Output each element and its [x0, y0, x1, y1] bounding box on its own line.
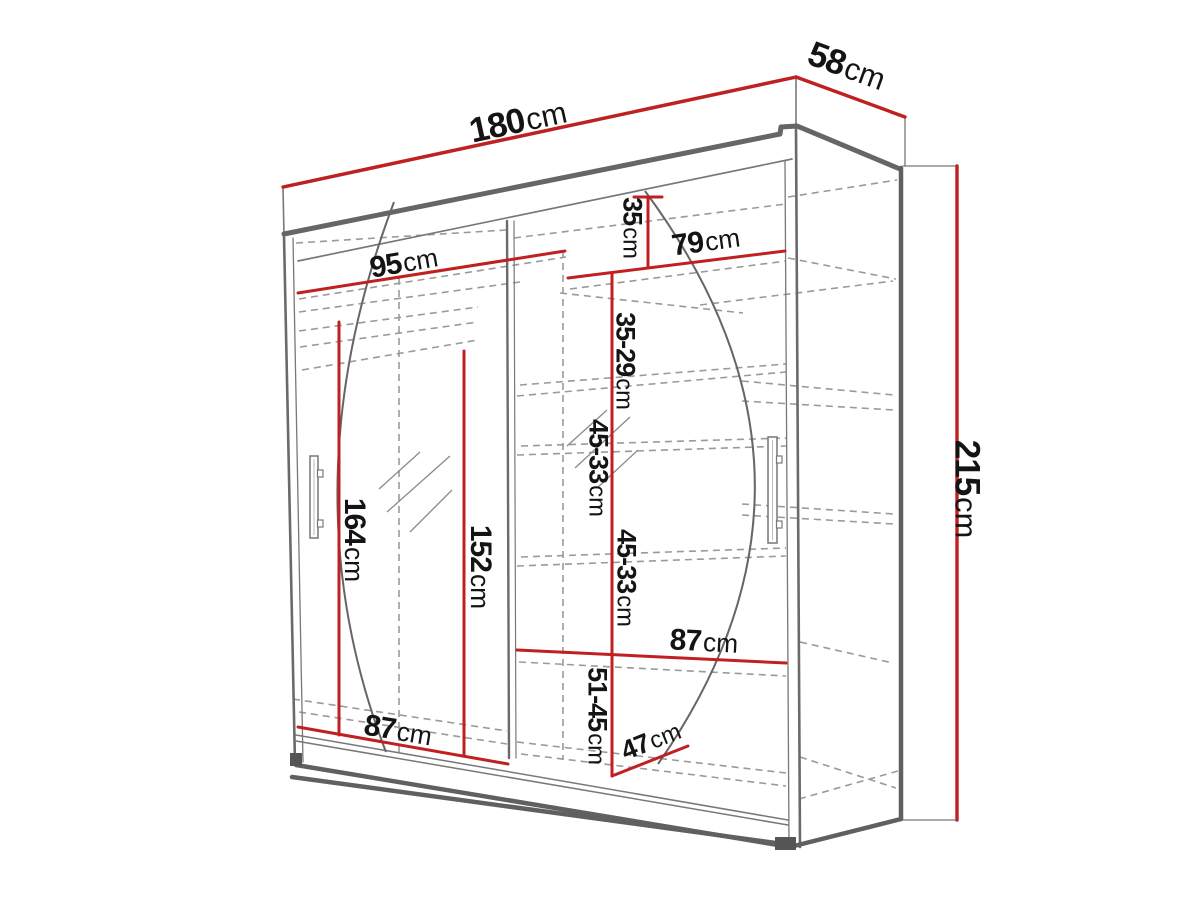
handle-mount [318, 520, 324, 527]
shelf-edge-dashed [800, 642, 893, 663]
dim-line-right-shelf-width [517, 650, 786, 663]
side-bottom-edge [790, 819, 901, 847]
dim-label-top-shelf-space: 35cm [619, 197, 646, 259]
glint-line [410, 490, 452, 532]
shelf-edge-dashed [788, 180, 897, 197]
shelf-edge-dashed [302, 340, 478, 370]
wardrobe-dimension-diagram: 180cm 58cm 215cm 95cm 79cm 35cm 35-29cm … [0, 0, 1200, 900]
shelf-edge-dashed [299, 307, 478, 331]
shelf-edge-dashed [519, 662, 786, 676]
dim-label-right-shelf-width: 87cm [669, 625, 739, 659]
dim-label-left-hanging-height: 164cm [339, 498, 369, 582]
shelf-edge-dashed [800, 757, 896, 788]
dim-label-total-height: 215cm [950, 440, 985, 538]
shelf-edge-dashed [521, 548, 786, 557]
door-divider [507, 221, 509, 758]
door-handles [310, 437, 782, 543]
foot-left [290, 753, 302, 766]
cornice-front-edge [284, 126, 900, 234]
shelf-edge-dashed [742, 504, 894, 514]
dim-label-shelf-space-1: 35-29cm [612, 312, 639, 410]
handle-mount [318, 470, 324, 477]
glint-line [387, 456, 450, 512]
foot-right [775, 837, 796, 850]
shelf-edge-dashed [799, 771, 898, 799]
left-front-edge [284, 236, 295, 764]
shelf-edge-dashed [517, 446, 786, 455]
shelf-edge-dashed [300, 322, 478, 347]
handle-mount [777, 456, 783, 463]
dim-label-mid-hanging-height: 152cm [465, 525, 495, 609]
dim-label-shelf-space-3: 45-33cm [613, 529, 640, 627]
shelf-edge-dashed [517, 372, 786, 396]
shelf-edge-dashed [788, 258, 896, 279]
door-divider-inner [514, 221, 516, 758]
dimension-lines [283, 77, 957, 820]
right-door-edge [785, 161, 789, 845]
dim-label-bottom-shelf-space: 51-45cm [584, 667, 611, 765]
shelf-edge-dashed [742, 401, 894, 410]
top-left-edge [283, 188, 284, 235]
shelf-edge-dashed [296, 230, 506, 243]
right-front-edge [796, 129, 800, 847]
dim-label-shelf-space-2: 45-33cm [585, 419, 612, 517]
shelf-edge-dashed [742, 381, 894, 395]
shelf-edge-dashed [517, 556, 786, 566]
shelf-edge-dashed [742, 515, 894, 524]
handle-mount [777, 521, 783, 528]
shelf-edge-dashed [521, 438, 786, 446]
shelf-edge-dashed [514, 204, 786, 238]
right-door-arc [645, 191, 755, 764]
